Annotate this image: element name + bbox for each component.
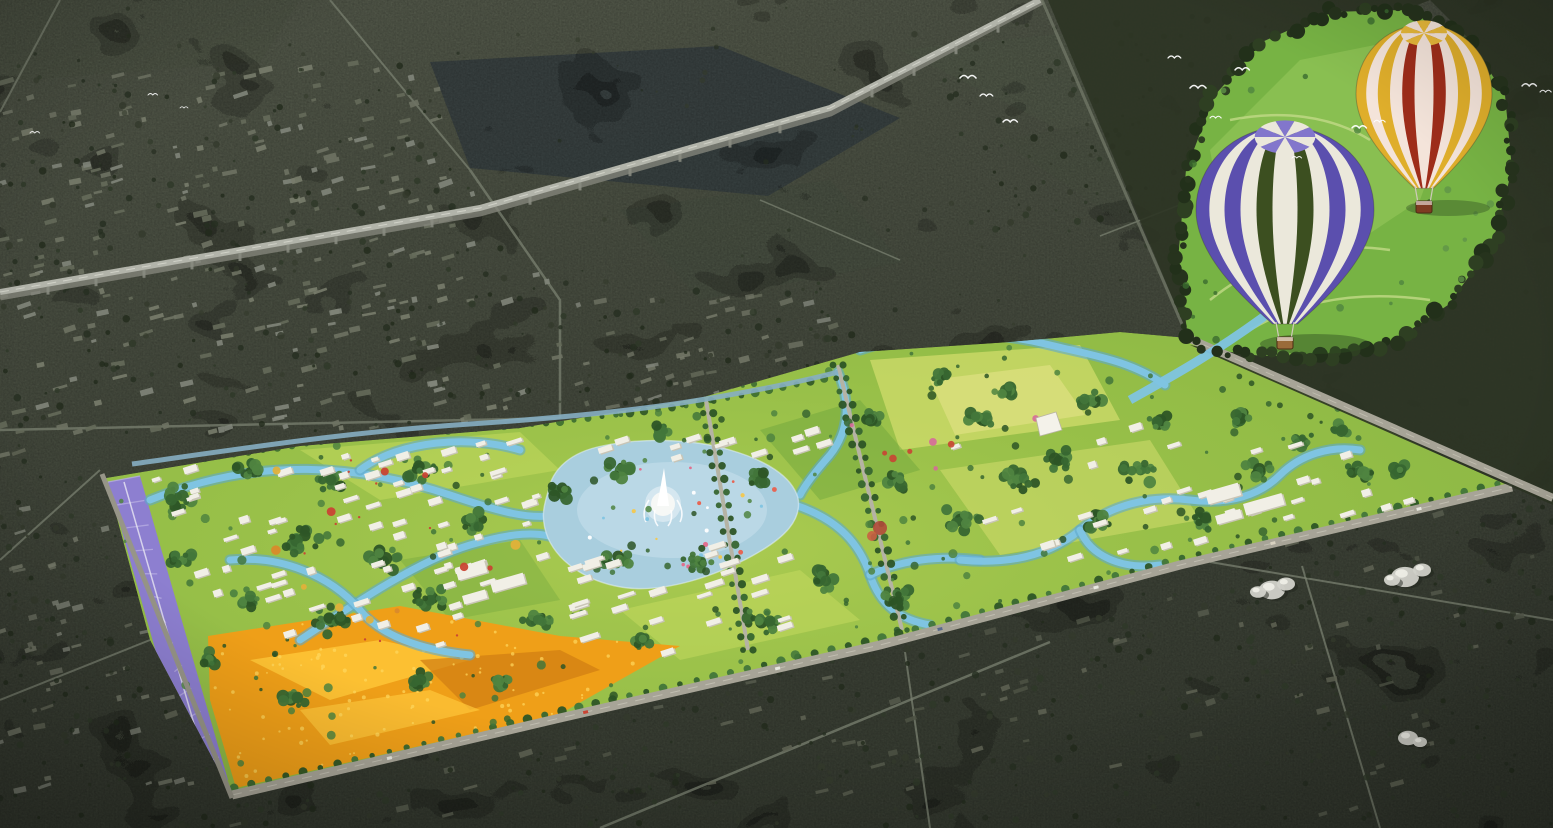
aerial-masterplan-rendering <box>0 0 1553 828</box>
vignette <box>0 0 1553 828</box>
scene-canvas <box>0 0 1553 828</box>
